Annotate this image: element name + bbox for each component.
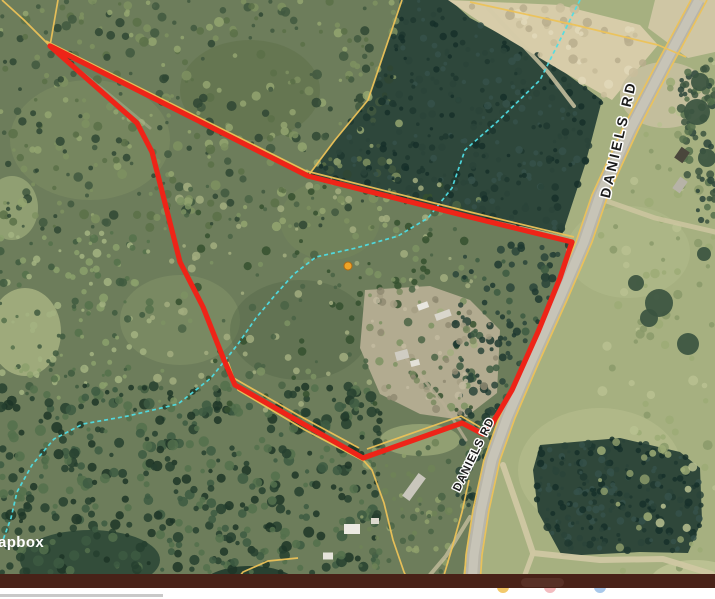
mapbox-attribution[interactable]: apbox	[0, 534, 44, 551]
bottom-bar	[0, 574, 715, 588]
dock-highlight	[521, 578, 564, 587]
aerial-map-canvas[interactable]: DANIELS RD DANIELS RD apbox	[0, 0, 715, 575]
aerial-imagery-layer	[0, 0, 715, 575]
bottom-panel-edge	[0, 594, 163, 597]
screen: DANIELS RD DANIELS RD apbox	[0, 0, 715, 599]
map-viewport[interactable]: DANIELS RD DANIELS RD apbox	[0, 0, 715, 575]
